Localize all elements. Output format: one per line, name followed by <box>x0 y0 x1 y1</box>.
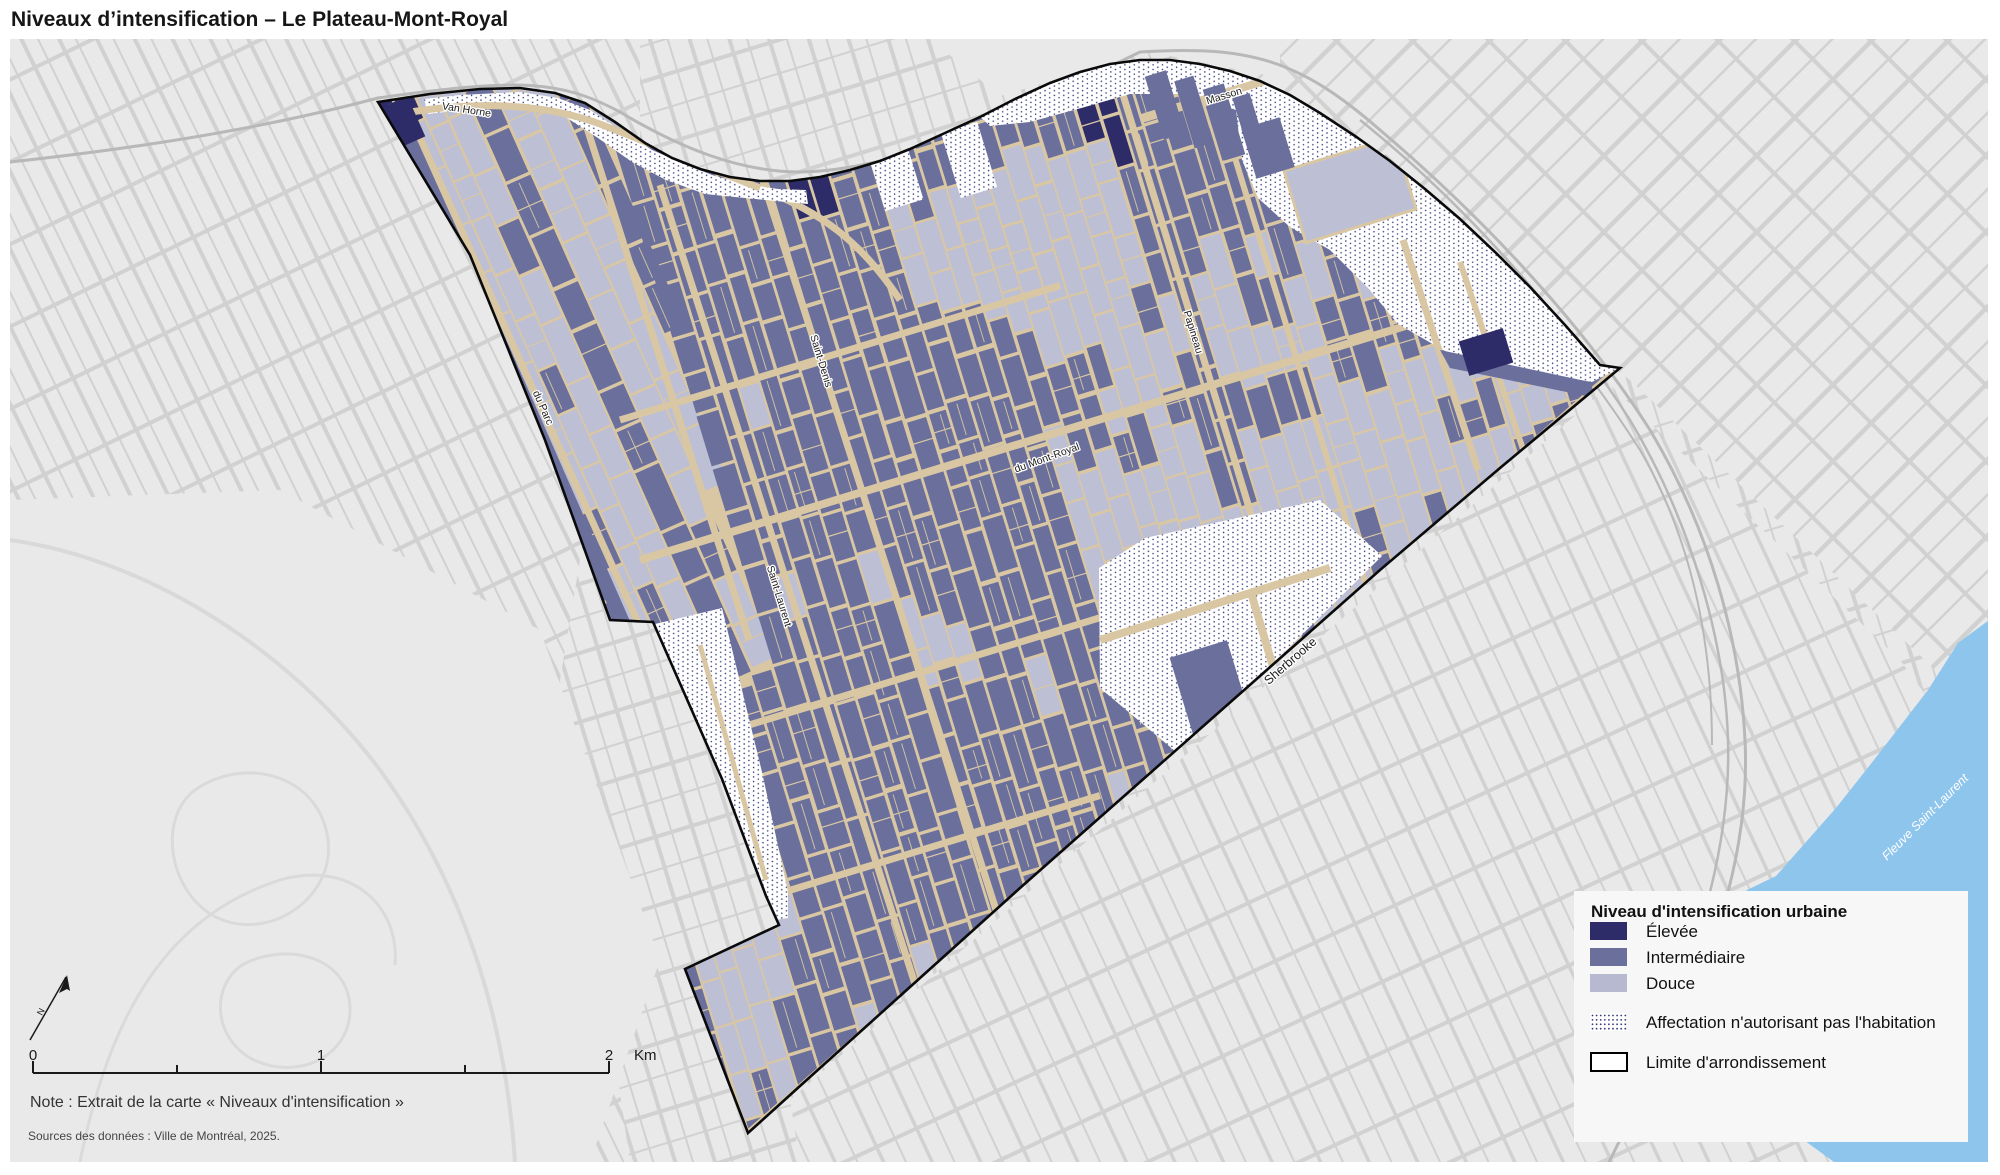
svg-text:Sources des données : Ville de: Sources des données : Ville de Montréal,… <box>28 1129 280 1143</box>
svg-text:Km: Km <box>634 1047 657 1064</box>
svg-text:Niveaux d’intensification – Le: Niveaux d’intensification – Le Plateau-M… <box>11 8 508 31</box>
svg-text:Note : Extrait de la carte « N: Note : Extrait de la carte « Niveaux d'i… <box>30 1094 404 1111</box>
svg-text:Niveau d'intensification urbai: Niveau d'intensification urbaine <box>1591 902 1847 921</box>
svg-text:0: 0 <box>29 1047 37 1064</box>
svg-text:Limite d'arrondissement: Limite d'arrondissement <box>1646 1053 1826 1072</box>
svg-text:Affectation n'autorisant pas l: Affectation n'autorisant pas l'habitatio… <box>1646 1013 1936 1032</box>
svg-text:Intermédiaire: Intermédiaire <box>1646 948 1745 967</box>
svg-text:2: 2 <box>605 1047 613 1064</box>
svg-text:1: 1 <box>317 1047 325 1064</box>
svg-text:Douce: Douce <box>1646 974 1695 993</box>
svg-text:Élevée: Élevée <box>1646 922 1698 941</box>
